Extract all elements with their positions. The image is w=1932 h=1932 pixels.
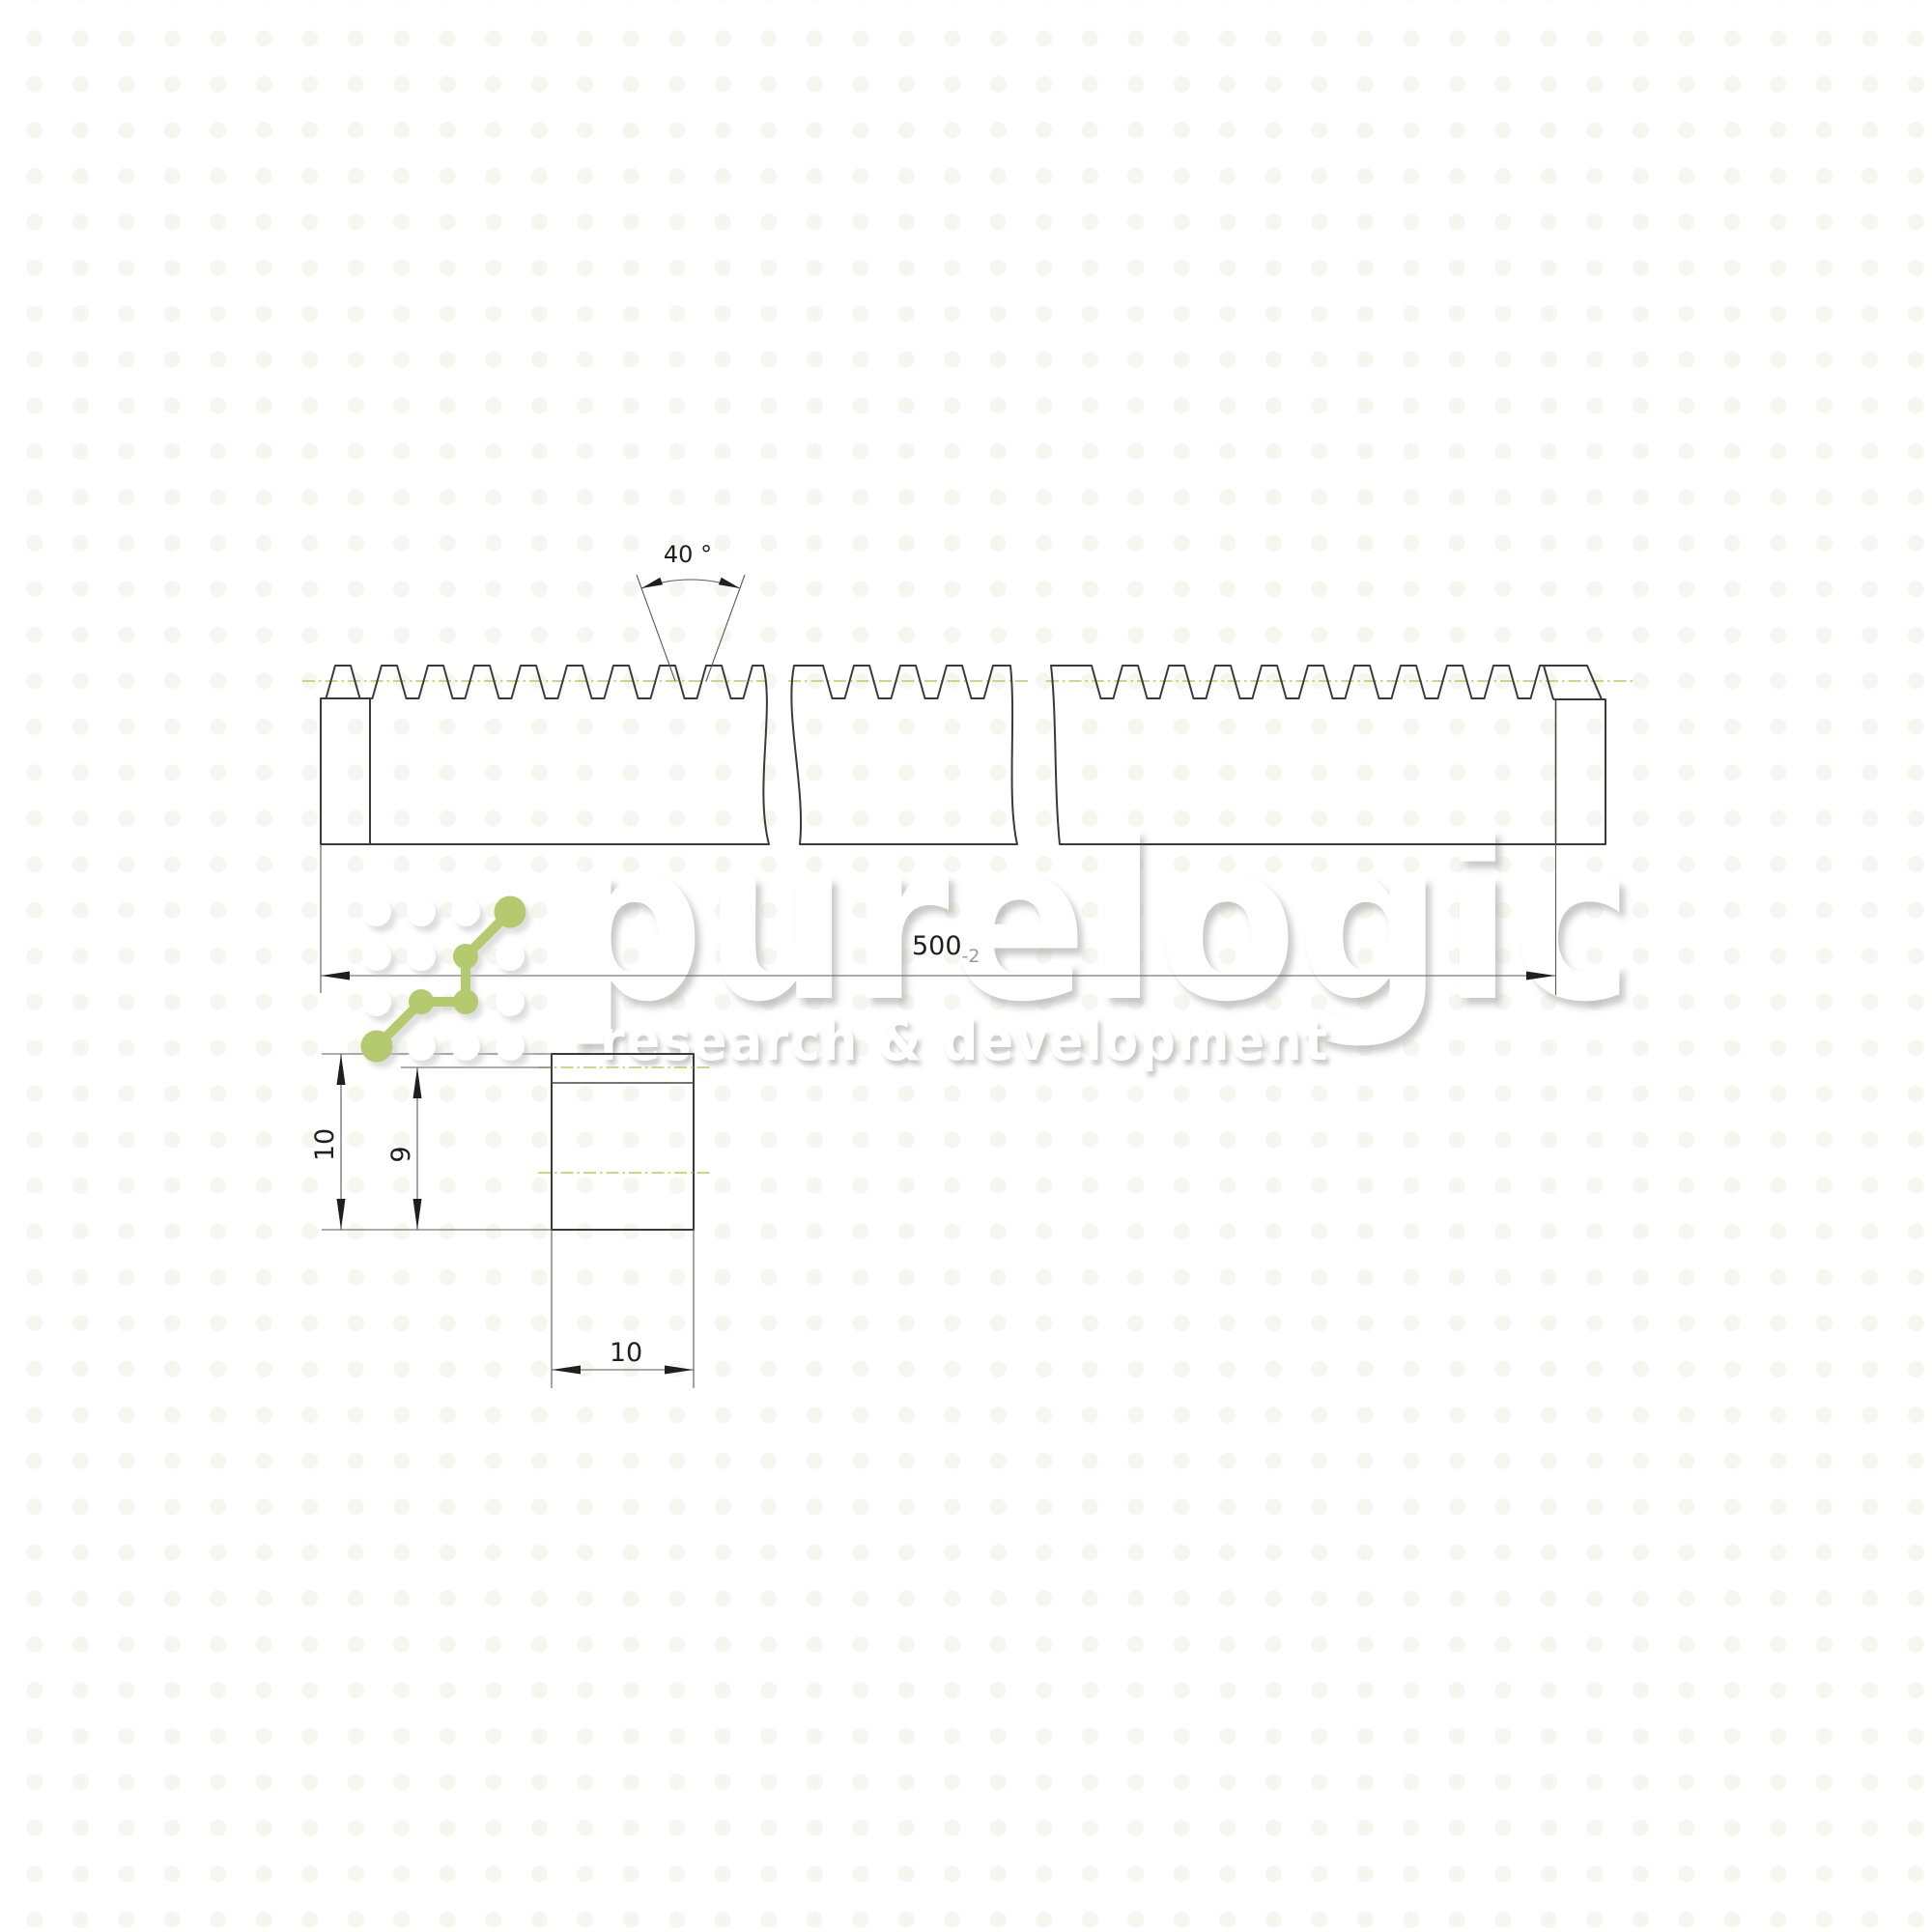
logo-white-dot [451, 897, 480, 926]
logo-white-dot [496, 987, 525, 1016]
logo-green-dot [361, 1031, 393, 1063]
logo-white-dot [407, 897, 436, 926]
logo-white-dot [451, 1032, 480, 1061]
logo-white-dot [362, 987, 391, 1016]
logo-white-dot [496, 942, 525, 971]
logo-green-dot [495, 896, 526, 928]
logo-green-dot [409, 989, 434, 1014]
logo-white-dot [407, 1032, 436, 1061]
logo-white-dot [362, 897, 391, 926]
logo-white-dot [496, 1032, 525, 1061]
logo-trace [382, 918, 515, 1052]
logo-green-dot [453, 989, 478, 1014]
logo-dots [361, 896, 526, 1063]
logo-green-dot [453, 944, 478, 969]
logo-white-dot [362, 942, 391, 971]
logo-trace [377, 912, 510, 1046]
logo-white-dot [407, 942, 436, 971]
purelogic-logo-icon [0, 0, 1932, 1932]
